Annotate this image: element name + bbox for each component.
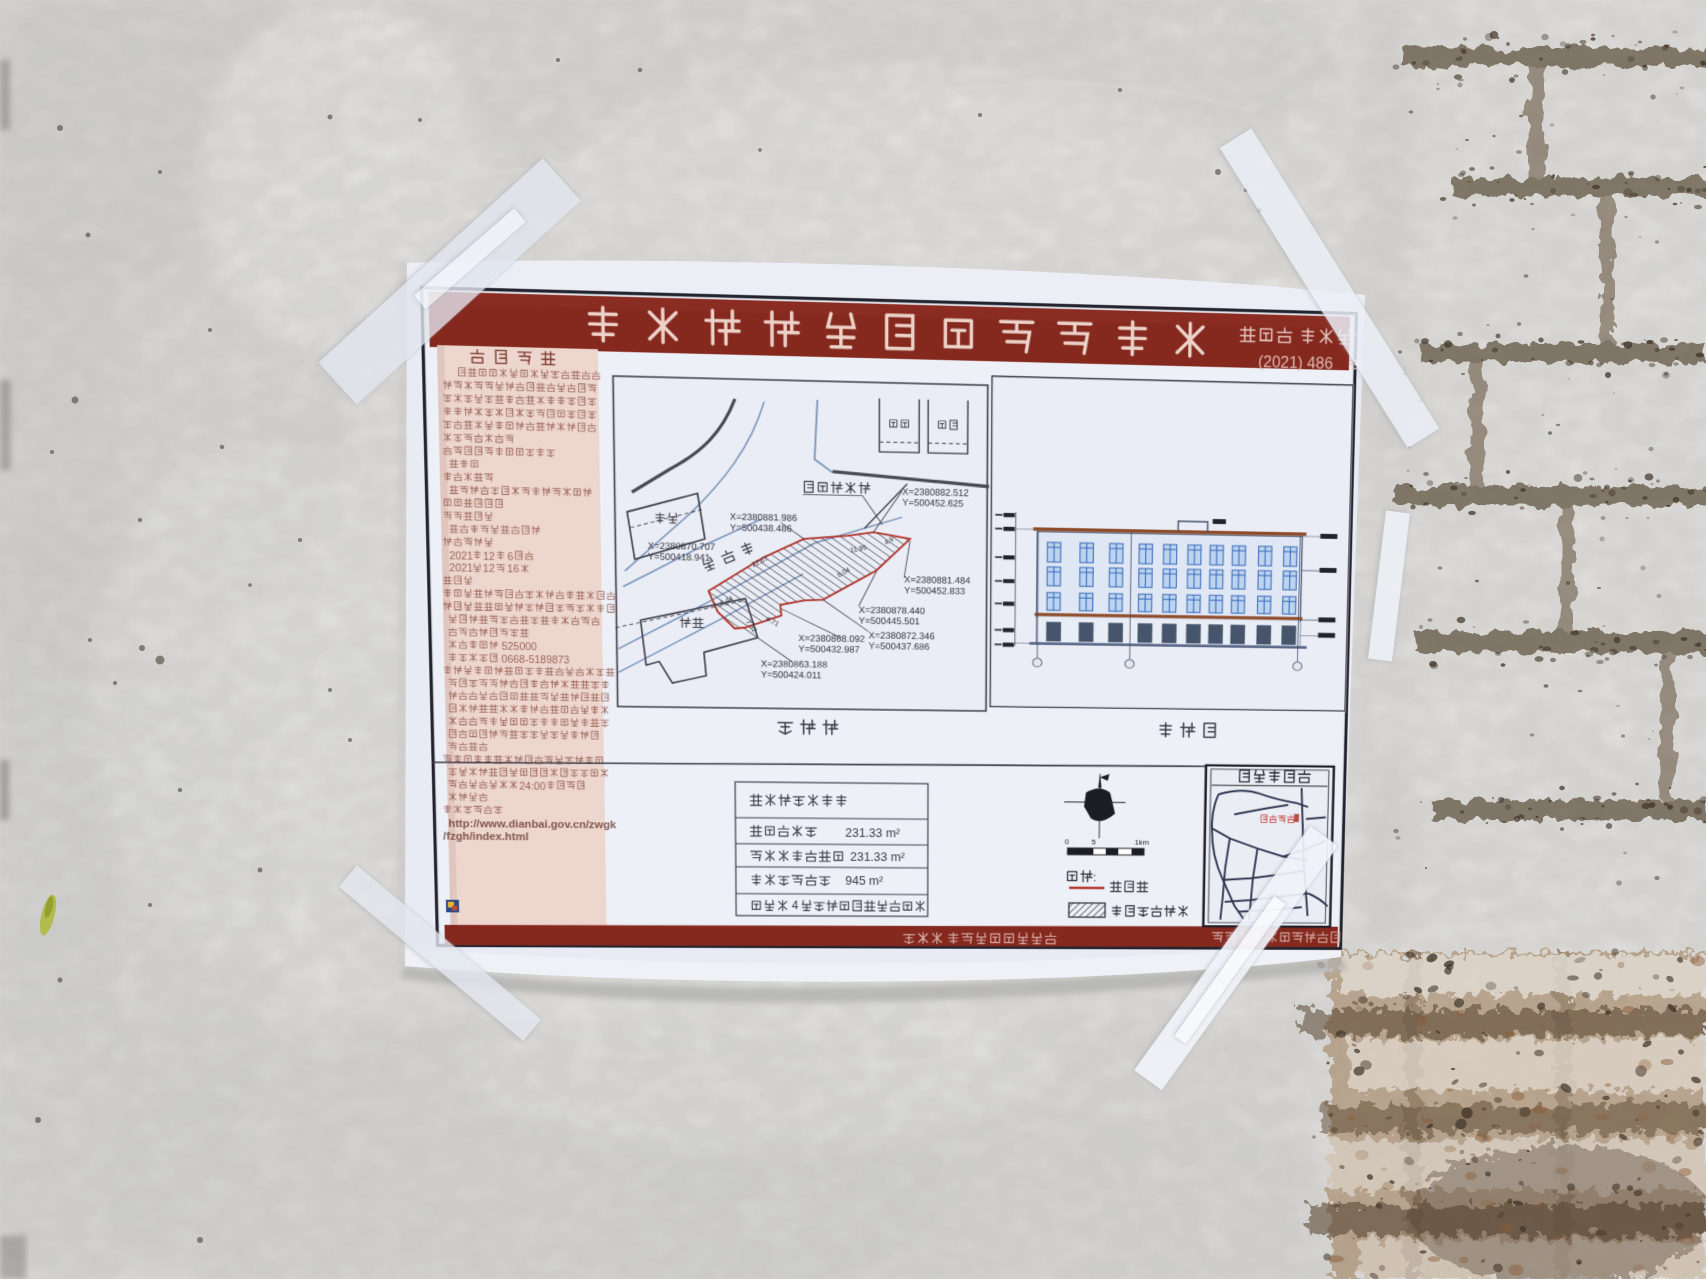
svg-text:Y=500424.011: Y=500424.011 [761, 670, 822, 681]
svg-text:X=2380881.484: X=2380881.484 [904, 575, 971, 586]
svg-text:Y=500432.987: Y=500432.987 [798, 644, 860, 655]
svg-text:Y=500438.486: Y=500438.486 [730, 523, 792, 535]
svg-text:16: 16 [507, 564, 519, 576]
svg-text:X=2380863.188: X=2380863.188 [761, 659, 828, 670]
svg-text:X=2380878.440: X=2380878.440 [859, 606, 926, 617]
svg-text:X=2380882.512: X=2380882.512 [902, 487, 969, 499]
svg-text:Y=500452.625: Y=500452.625 [902, 498, 964, 510]
svg-text:X=2380868.092: X=2380868.092 [798, 634, 865, 645]
svg-text:1km: 1km [1135, 837, 1150, 846]
svg-text:X=2380872.346: X=2380872.346 [869, 631, 936, 642]
svg-text:(2021) 486: (2021) 486 [1258, 353, 1333, 373]
svg-text:6: 6 [507, 551, 513, 563]
svg-text:525000: 525000 [501, 641, 537, 653]
svg-text:0668-5189873: 0668-5189873 [501, 654, 569, 666]
svg-text:4: 4 [792, 899, 799, 912]
svg-text:231.33 m²: 231.33 m² [850, 850, 905, 864]
svg-text:231.33 m²: 231.33 m² [845, 826, 900, 840]
svg-text:24:00: 24:00 [519, 781, 545, 792]
svg-text:5: 5 [1092, 837, 1097, 846]
svg-text:Y=500437.686: Y=500437.686 [869, 642, 930, 653]
svg-text:/fzgh/index.html: /fzgh/index.html [443, 830, 529, 843]
svg-text:2021: 2021 [449, 563, 473, 575]
svg-text:12: 12 [483, 564, 495, 576]
svg-text:Y=500452.833: Y=500452.833 [904, 586, 965, 597]
svg-text:X=2380881.986: X=2380881.986 [730, 512, 798, 524]
svg-text::: : [1093, 871, 1096, 884]
svg-text:http://www.dianbai.gov.cn/zwgk: http://www.dianbai.gov.cn/zwgk [448, 818, 616, 831]
svg-text:2021: 2021 [449, 550, 473, 562]
svg-text:X=2380870.707: X=2380870.707 [648, 541, 716, 553]
svg-text:Y=500445.501: Y=500445.501 [859, 616, 921, 627]
svg-text:0: 0 [1065, 837, 1070, 846]
svg-text:945 m²: 945 m² [845, 874, 883, 888]
svg-text:Y=500418.941: Y=500418.941 [648, 552, 711, 563]
svg-text:12: 12 [483, 551, 495, 563]
